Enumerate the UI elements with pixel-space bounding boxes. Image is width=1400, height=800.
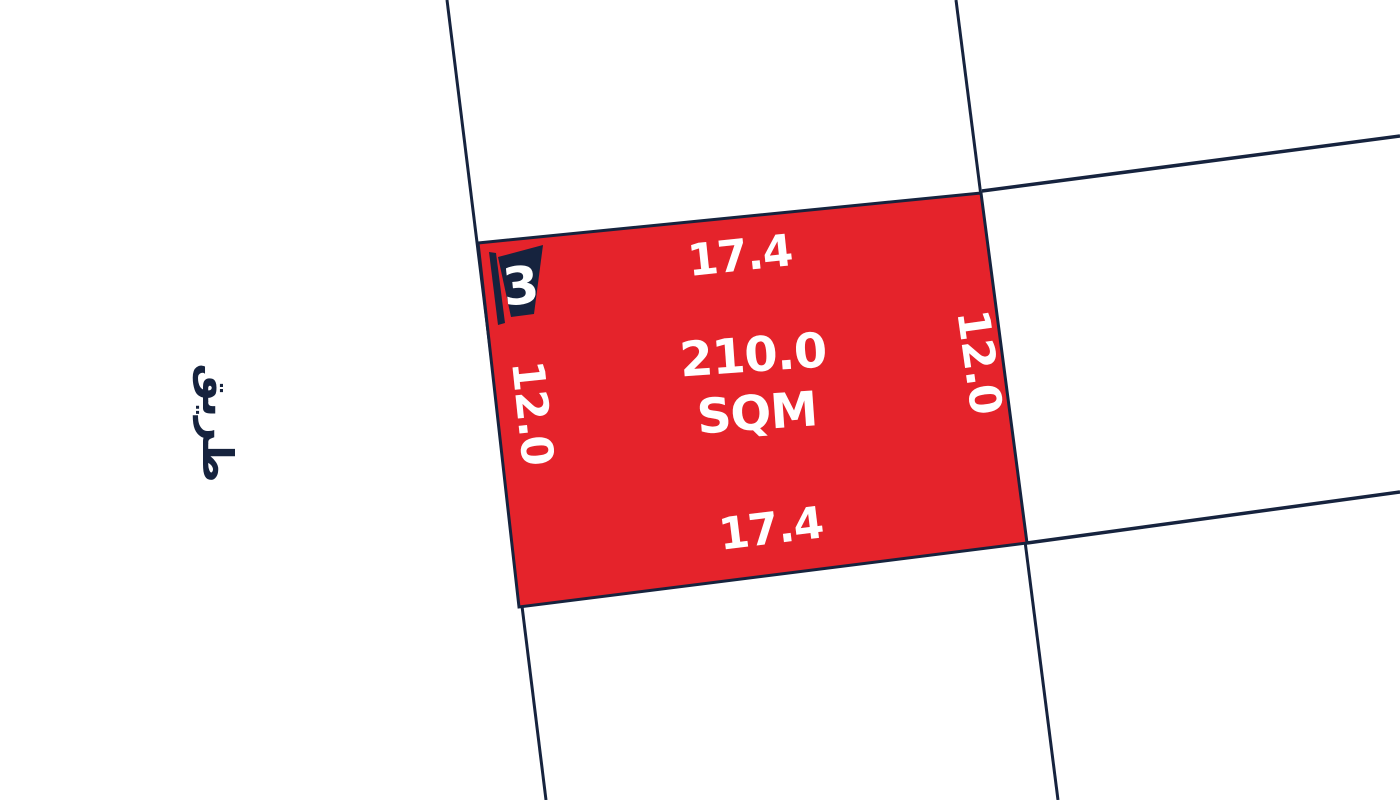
road-label: طريق [192,363,242,482]
plot-number: 3 [500,254,543,320]
dimension-left: 12.0 [499,358,562,468]
plot-area-value: 210.0 [678,322,828,390]
boundary-line-upper-right [982,136,1400,191]
plot-area-label: 210.0 SQM [678,322,833,447]
boundary-line-lower-right [1027,492,1400,543]
cadastral-plot-map: 3 17.4 17.4 12.0 12.0 210.0 SQM طريق [0,0,1400,800]
plot-area-unit: SQM [682,380,832,448]
dimension-top: 17.4 [685,225,795,288]
